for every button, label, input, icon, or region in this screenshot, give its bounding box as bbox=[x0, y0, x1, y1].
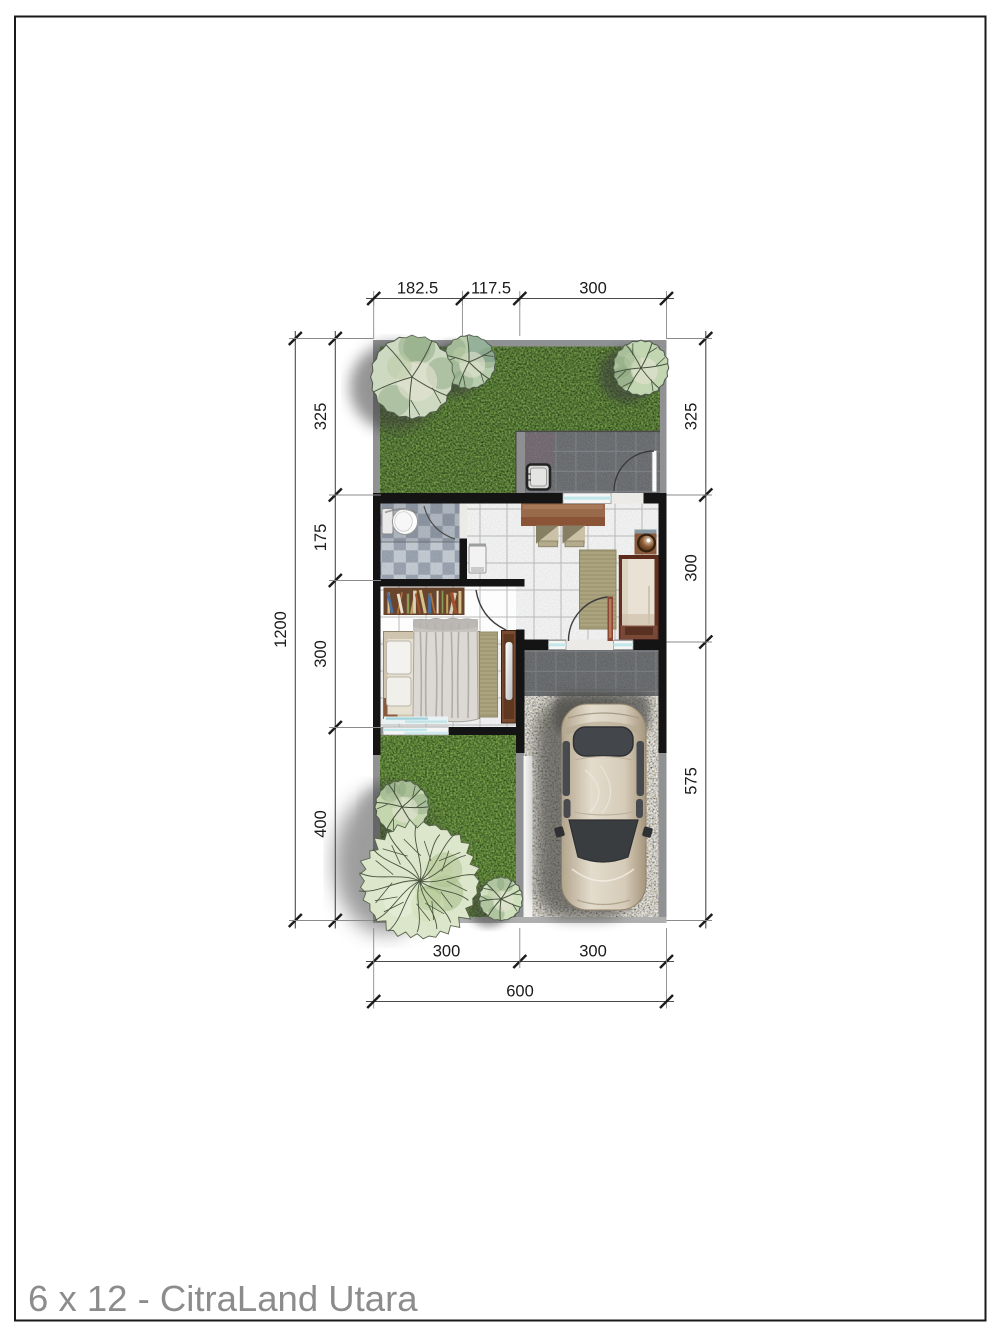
svg-text:325: 325 bbox=[312, 403, 330, 431]
svg-text:575: 575 bbox=[683, 767, 701, 795]
svg-text:325: 325 bbox=[683, 403, 701, 431]
svg-text:300: 300 bbox=[579, 943, 607, 961]
svg-text:300: 300 bbox=[683, 554, 701, 582]
svg-text:600: 600 bbox=[506, 983, 534, 1001]
svg-text:1200: 1200 bbox=[272, 611, 290, 648]
svg-text:6 x 12 - CitraLand Utara: 6 x 12 - CitraLand Utara bbox=[28, 1278, 418, 1319]
svg-text:182.5: 182.5 bbox=[397, 280, 438, 298]
svg-text:300: 300 bbox=[312, 640, 330, 668]
svg-text:117.5: 117.5 bbox=[471, 280, 511, 298]
svg-text:300: 300 bbox=[433, 943, 461, 961]
svg-text:300: 300 bbox=[579, 280, 607, 298]
svg-text:400: 400 bbox=[312, 810, 330, 838]
svg-text:175: 175 bbox=[312, 524, 330, 552]
